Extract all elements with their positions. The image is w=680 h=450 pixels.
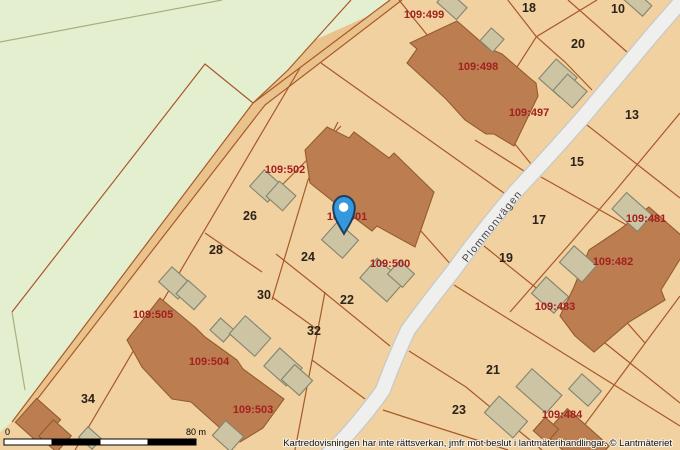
svg-text:0: 0 — [5, 427, 10, 437]
svg-text:20: 20 — [571, 37, 585, 51]
svg-text:21: 21 — [486, 363, 500, 377]
svg-text:19: 19 — [499, 251, 513, 265]
svg-text:109:484: 109:484 — [542, 409, 583, 421]
svg-text:26: 26 — [243, 209, 257, 223]
svg-text:34: 34 — [81, 392, 95, 406]
svg-text:109:499: 109:499 — [404, 9, 444, 21]
svg-text:32: 32 — [307, 324, 321, 338]
svg-text:109:504: 109:504 — [189, 356, 230, 368]
svg-text:109:498: 109:498 — [458, 61, 498, 73]
svg-text:109:505: 109:505 — [133, 309, 173, 321]
svg-text:18: 18 — [522, 1, 536, 15]
svg-text:Kartredovisningen har inte rät: Kartredovisningen har inte rättsverkan, … — [283, 438, 672, 449]
svg-text:13: 13 — [625, 108, 639, 122]
svg-text:80 m: 80 m — [186, 427, 206, 437]
svg-text:109:497: 109:497 — [509, 107, 549, 119]
svg-text:109:502: 109:502 — [265, 164, 305, 176]
svg-text:23: 23 — [452, 403, 466, 417]
svg-text:28: 28 — [209, 243, 223, 257]
svg-text:109:500: 109:500 — [370, 258, 410, 270]
svg-text:24: 24 — [301, 250, 315, 264]
svg-text:22: 22 — [340, 293, 354, 307]
svg-text:109:503: 109:503 — [233, 404, 273, 416]
svg-text:10: 10 — [611, 2, 625, 16]
svg-text:30: 30 — [257, 288, 271, 302]
svg-text:17: 17 — [532, 213, 546, 227]
svg-text:15: 15 — [570, 155, 584, 169]
svg-text:109:482: 109:482 — [593, 256, 633, 268]
svg-text:109:481: 109:481 — [626, 213, 666, 225]
svg-text:109:483: 109:483 — [535, 301, 575, 313]
